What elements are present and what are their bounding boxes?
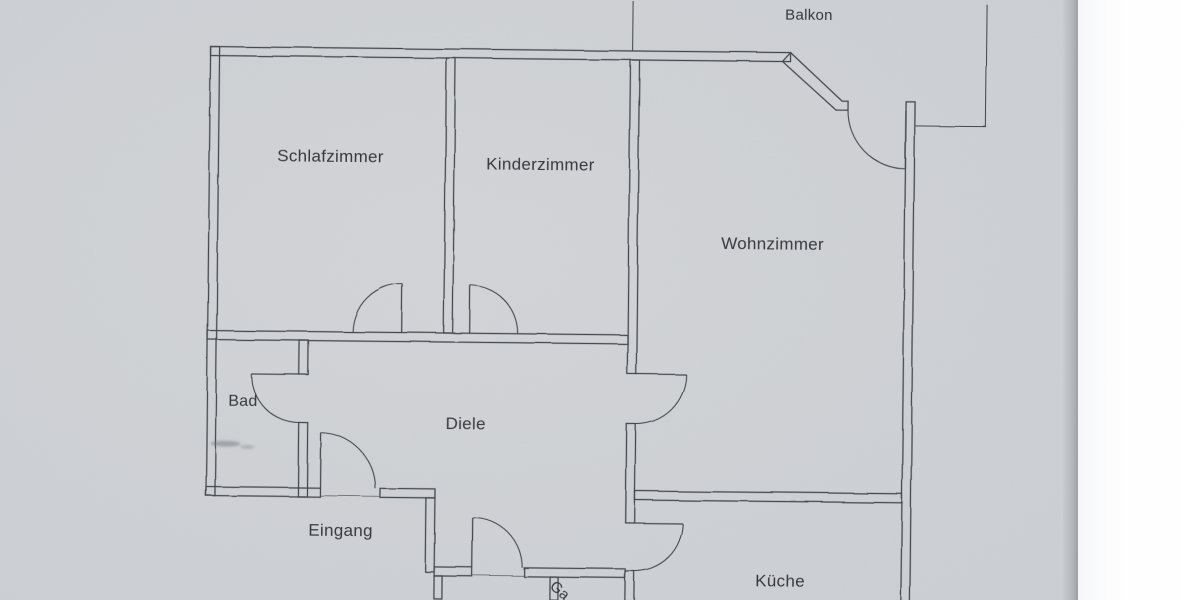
floorplan-svg: Balkon Schlafzimmer Kinderzimmer Wohnzim… xyxy=(0,0,1078,600)
door-leaf-kueche xyxy=(635,523,683,524)
room-label-bad: Bad xyxy=(228,393,258,410)
paper-grain-texture xyxy=(0,0,1078,600)
room-label-balkon: Balkon xyxy=(785,7,833,24)
paper-edge-shadow xyxy=(1062,0,1078,600)
balcony-line-bottom xyxy=(915,126,986,127)
room-label-diele: Diele xyxy=(445,414,485,433)
door-leaf-entrance-lower xyxy=(472,517,473,567)
door-leaf-schlafzimmer xyxy=(402,284,403,333)
threshold-entrance-door xyxy=(472,575,524,576)
room-label-schlafzimmer: Schlafzimmer xyxy=(277,146,384,166)
door-leaf-wohnzimmer xyxy=(636,374,686,375)
door-leaf-bad xyxy=(251,374,299,375)
door-leaf-diele-eingang xyxy=(320,433,321,488)
room-label-kueche: Küche xyxy=(755,571,805,591)
room-label-wohnzimmer: Wohnzimmer xyxy=(721,234,824,254)
balcony-line-left xyxy=(633,1,634,51)
door-leaf-balkon xyxy=(905,111,906,169)
room-label-kinderzimmer: Kinderzimmer xyxy=(486,154,595,174)
scan-white-margin xyxy=(1078,0,1200,600)
floorplan-screenshot: Balkon Schlafzimmer Kinderzimmer Wohnzim… xyxy=(0,0,1200,600)
paper-photo-area: Balkon Schlafzimmer Kinderzimmer Wohnzim… xyxy=(0,0,1078,600)
room-label-eingang: Eingang xyxy=(308,521,373,541)
door-leaf-kinderzimmer xyxy=(470,285,471,333)
